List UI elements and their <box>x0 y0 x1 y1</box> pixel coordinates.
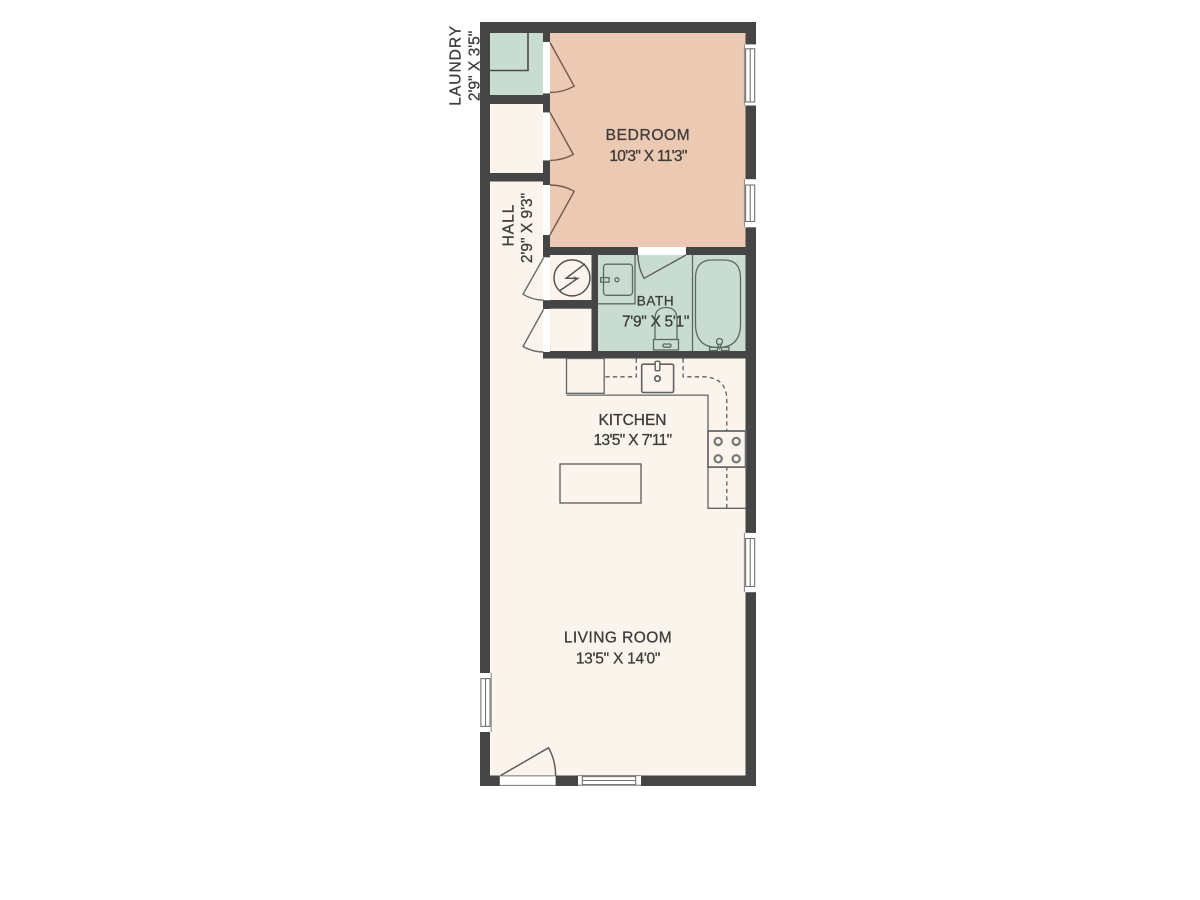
svg-text:BATH: BATH <box>637 294 674 309</box>
svg-text:HALL: HALL <box>500 204 517 247</box>
svg-text:LIVING ROOM: LIVING ROOM <box>564 630 672 647</box>
svg-text:2'9" X 3'5": 2'9" X 3'5" <box>467 31 484 101</box>
svg-text:BEDROOM: BEDROOM <box>606 127 691 144</box>
svg-text:LAUNDRY: LAUNDRY <box>448 25 465 106</box>
svg-text:13'5" X 14'0": 13'5" X 14'0" <box>576 651 660 668</box>
svg-text:7'9" X 5'1": 7'9" X 5'1" <box>622 313 689 330</box>
svg-text:10'3" X 11'3": 10'3" X 11'3" <box>609 148 687 165</box>
svg-text:13'5" X 7'11": 13'5" X 7'11" <box>594 432 672 449</box>
svg-text:KITCHEN: KITCHEN <box>598 412 666 429</box>
svg-text:2'9" X 9'3": 2'9" X 9'3" <box>519 193 536 263</box>
